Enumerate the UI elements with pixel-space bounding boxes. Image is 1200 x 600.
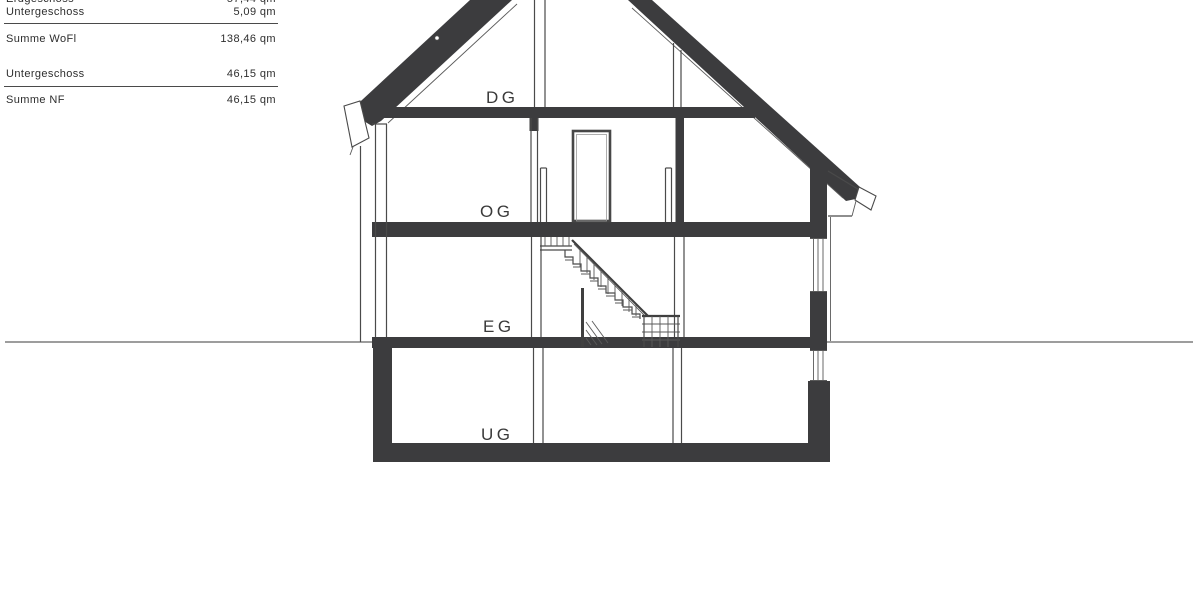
window-basement bbox=[810, 350, 827, 381]
architectural-section-sheet: Erdgeschoss 57,44 qm Untergeschoss 5,09 … bbox=[0, 0, 1200, 600]
slab-foundation bbox=[373, 443, 830, 462]
building-section-drawing: DG OG EG UG bbox=[0, 0, 1200, 600]
slab-ground-floor bbox=[372, 337, 827, 348]
roof-slope-right bbox=[628, 0, 870, 201]
roof-fastener-dot bbox=[435, 36, 439, 40]
chimney bbox=[535, 0, 546, 107]
door-frame-upper-floor bbox=[573, 131, 610, 221]
floor-label-dg: DG bbox=[486, 88, 519, 107]
staircase bbox=[540, 237, 680, 347]
window-upper-floor bbox=[810, 238, 827, 292]
floor-label-og: OG bbox=[480, 202, 513, 221]
wall-right-basement bbox=[808, 381, 830, 462]
basement-interior-walls bbox=[534, 348, 682, 443]
attic-interior-wall bbox=[674, 43, 682, 107]
wall-right-exterior bbox=[808, 166, 830, 462]
slab-upper-floor bbox=[372, 222, 827, 237]
slab-attic-floor bbox=[371, 107, 755, 118]
newel-post bbox=[581, 288, 584, 347]
wall-left-exterior bbox=[361, 124, 393, 462]
roof-fastener-dot bbox=[769, 110, 772, 113]
floor-label-ug: UG bbox=[481, 425, 514, 444]
wall-left-basement bbox=[373, 337, 392, 462]
floor-label-eg: EG bbox=[483, 317, 515, 336]
